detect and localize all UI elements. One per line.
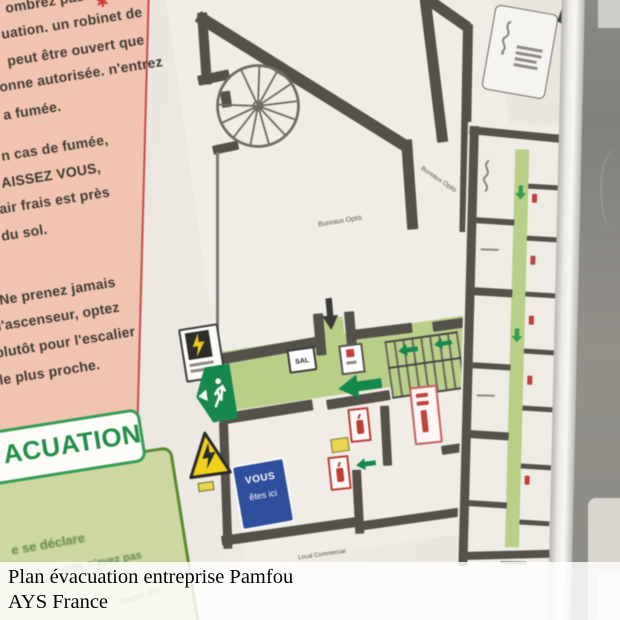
inset-red-icon [525,476,530,485]
logo-card [481,4,559,100]
fire-equipment-icon [409,385,443,446]
small-yellow-label [330,437,350,453]
corridor-box: SAL [286,346,317,374]
inset-red-icon [530,256,535,265]
bolt-shape [188,332,209,358]
exit-arrow-shape [197,389,208,402]
extinguisher-icon [327,455,351,491]
you-are-here-icon: VOUS êtes ici [233,459,293,529]
equipment-mark [421,410,429,433]
equipment-mark [417,401,429,406]
photo-area: Bureaux Optis Bureaux Optis Local Commer… [0,0,620,620]
wall-corner-light [598,0,620,28]
caption-title: Plan évacuation entreprise Pamfou [8,566,293,589]
corridor-box-label: SAL [295,357,310,366]
window-wall-line [216,152,219,350]
evacuation-title: ACUATION [1,418,143,470]
extinguisher-body [335,467,343,482]
logo-text-bar [514,63,538,70]
extinguisher-body [355,419,363,434]
inset-text-bar [481,248,499,250]
stairs-rail [388,357,462,369]
inset-red-icon [529,316,534,325]
electrical-warning-icon [183,427,234,485]
you-are-here-line1: VOUS [235,469,286,489]
caption-bar: Plan évacuation entreprise Pamfou AYS Fr… [0,562,620,620]
inset-red-icon [527,376,532,385]
you-are-here-line2: êtes ici [238,486,289,505]
alarm-bar [346,360,356,364]
equipment-mark [416,393,428,398]
electrical-icon-bg [185,330,213,360]
caption-subtitle: AYS France [8,591,108,614]
logo-glyph-small [476,158,497,195]
warning-sublabel [197,481,214,492]
alarm-square [346,349,355,358]
alarm-call-point-icon [338,343,365,376]
evacuation-plan-photo: Bureaux Optis Bureaux Optis Local Commer… [0,0,620,620]
logo-text-bar [515,57,537,63]
extinguisher-icon [347,407,371,443]
inset-red-icon [532,194,537,203]
